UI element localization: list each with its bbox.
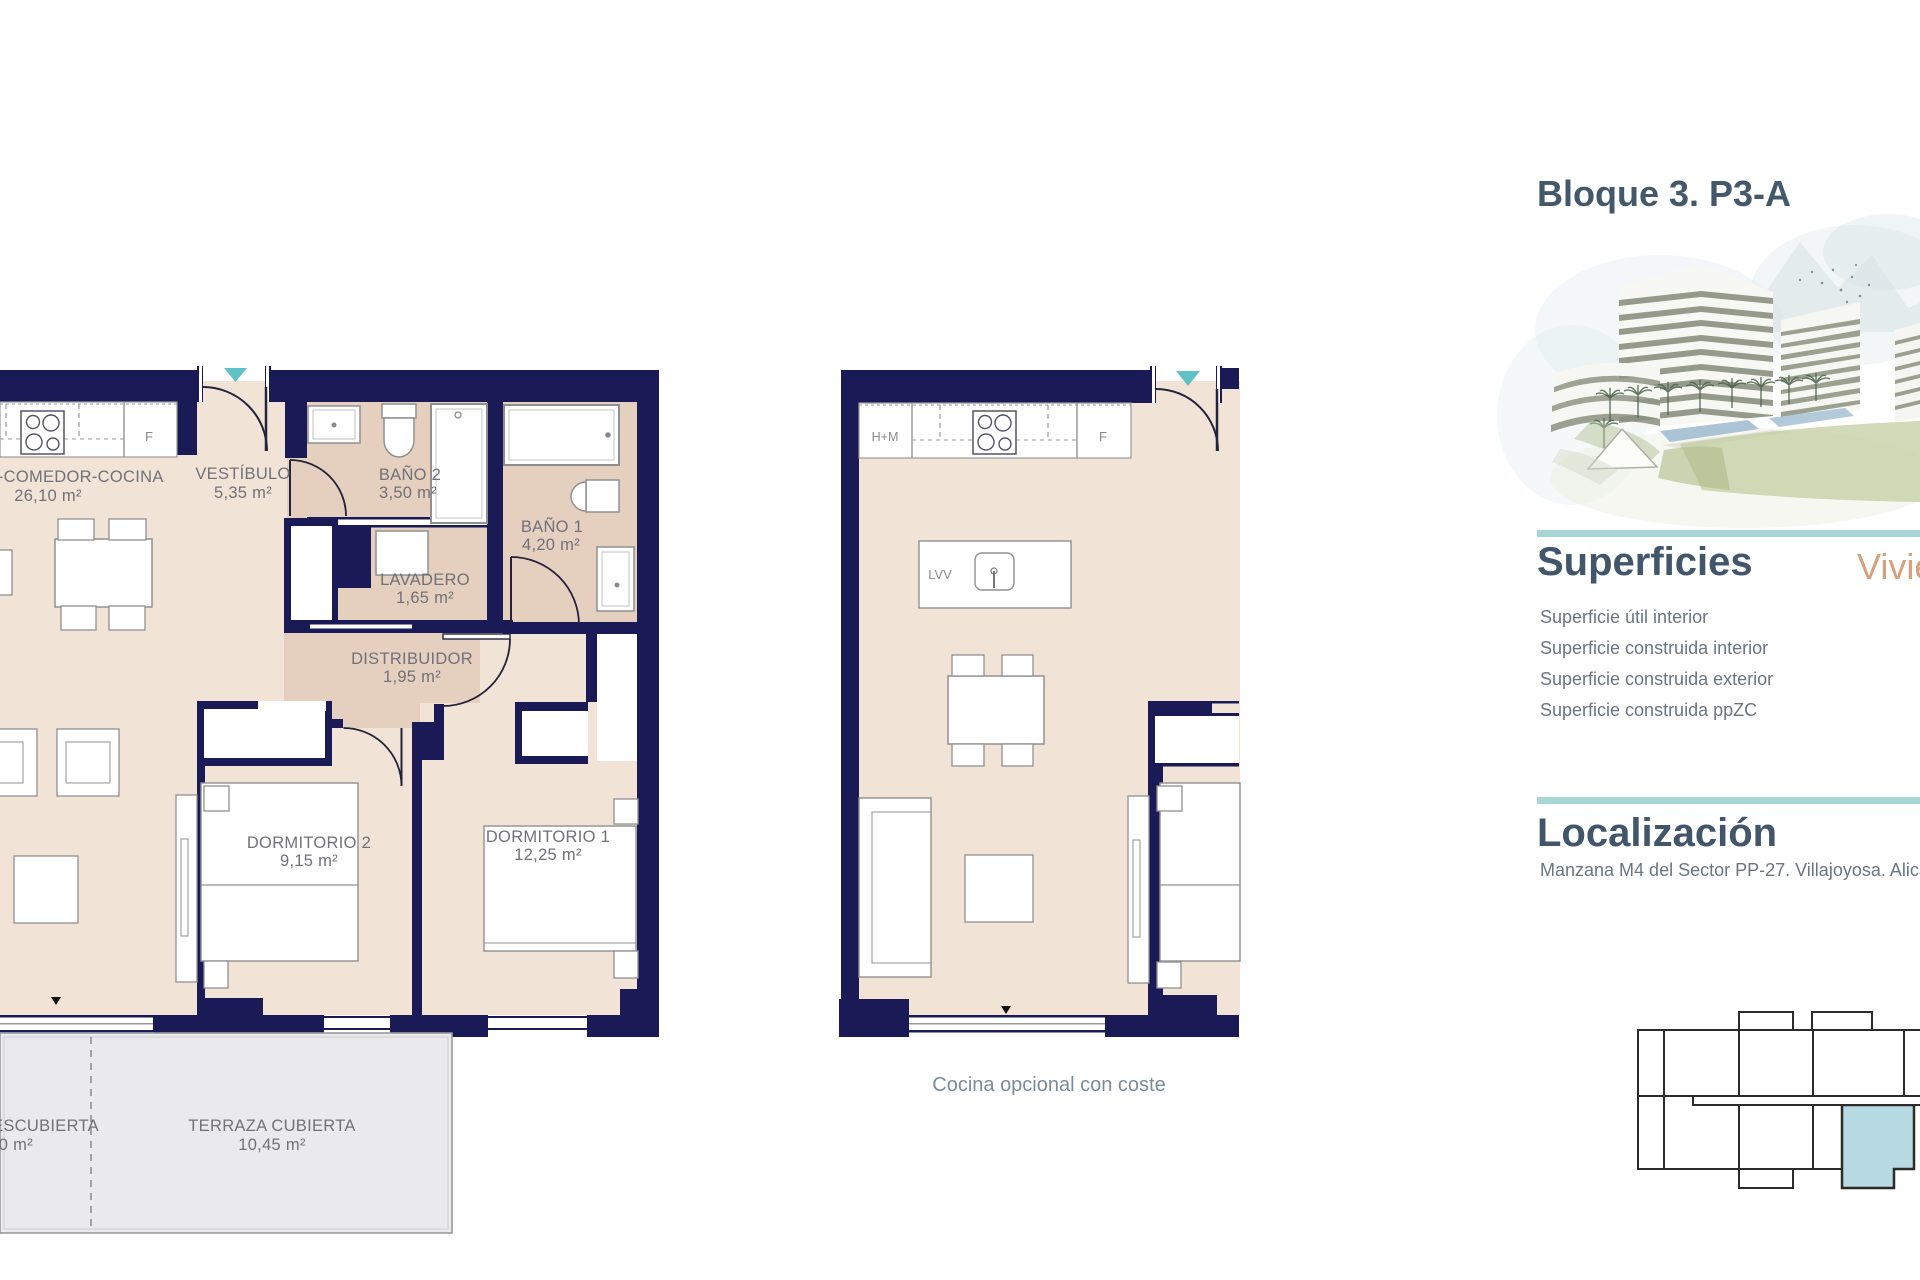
svg-text:12,25 m²: 12,25 m² — [514, 846, 582, 864]
svg-text:H+M: H+M — [872, 430, 899, 444]
svg-text:4,20 m²: 4,20 m² — [522, 536, 580, 554]
svg-text:5,35 m²: 5,35 m² — [214, 484, 272, 502]
svg-text:1,65 m²: 1,65 m² — [396, 589, 454, 607]
svg-text:DORMITORIO 2: DORMITORIO 2 — [247, 834, 371, 852]
svg-text:TERRAZA DESCUBIERTA: TERRAZA DESCUBIERTA — [0, 1117, 99, 1135]
svg-text:Vivienda: Vivienda — [1857, 546, 1920, 587]
svg-text:9,15 m²: 9,15 m² — [280, 852, 338, 870]
svg-text:Localización: Localización — [1537, 811, 1777, 855]
svg-text:Superficies: Superficies — [1537, 540, 1753, 584]
svg-text:Cocina opcional con coste: Cocina opcional con coste — [932, 1074, 1165, 1096]
svg-text:BAÑO 1: BAÑO 1 — [521, 516, 583, 536]
svg-text:LAVADERO: LAVADERO — [380, 571, 470, 589]
svg-text:DORMITORIO 1: DORMITORIO 1 — [486, 828, 610, 846]
svg-text:VESTÍBULO: VESTÍBULO — [195, 464, 290, 483]
svg-text:1,95 m²: 1,95 m² — [383, 668, 441, 686]
svg-text:SALÓN-COMEDOR-COCINA: SALÓN-COMEDOR-COCINA — [0, 467, 164, 486]
svg-text:11,10 m²: 11,10 m² — [0, 1136, 33, 1154]
svg-text:BAÑO 2: BAÑO 2 — [379, 464, 441, 484]
svg-text:Manzana M4 del Sector PP-27. V: Manzana M4 del Sector PP-27. Villajoyosa… — [1540, 860, 1920, 880]
svg-text:Superficie construida exterior: Superficie construida exterior — [1540, 669, 1773, 689]
svg-text:TERRAZA CUBIERTA: TERRAZA CUBIERTA — [188, 1117, 355, 1135]
svg-text:Bloque 3. P3-A: Bloque 3. P3-A — [1537, 173, 1791, 214]
svg-text:DISTRIBUIDOR: DISTRIBUIDOR — [351, 650, 473, 668]
svg-text:3,50 m²: 3,50 m² — [379, 484, 437, 502]
svg-text:26,10 m²: 26,10 m² — [14, 487, 82, 505]
svg-text:F: F — [145, 429, 153, 444]
svg-text:Superficie construida ppZC: Superficie construida ppZC — [1540, 700, 1757, 720]
svg-text:F: F — [1099, 429, 1107, 444]
svg-text:10,45 m²: 10,45 m² — [238, 1136, 306, 1154]
svg-text:Superficie construida interior: Superficie construida interior — [1540, 638, 1768, 658]
svg-text:Superficie útil interior: Superficie útil interior — [1540, 607, 1708, 627]
svg-text:LVV: LVV — [928, 567, 952, 582]
